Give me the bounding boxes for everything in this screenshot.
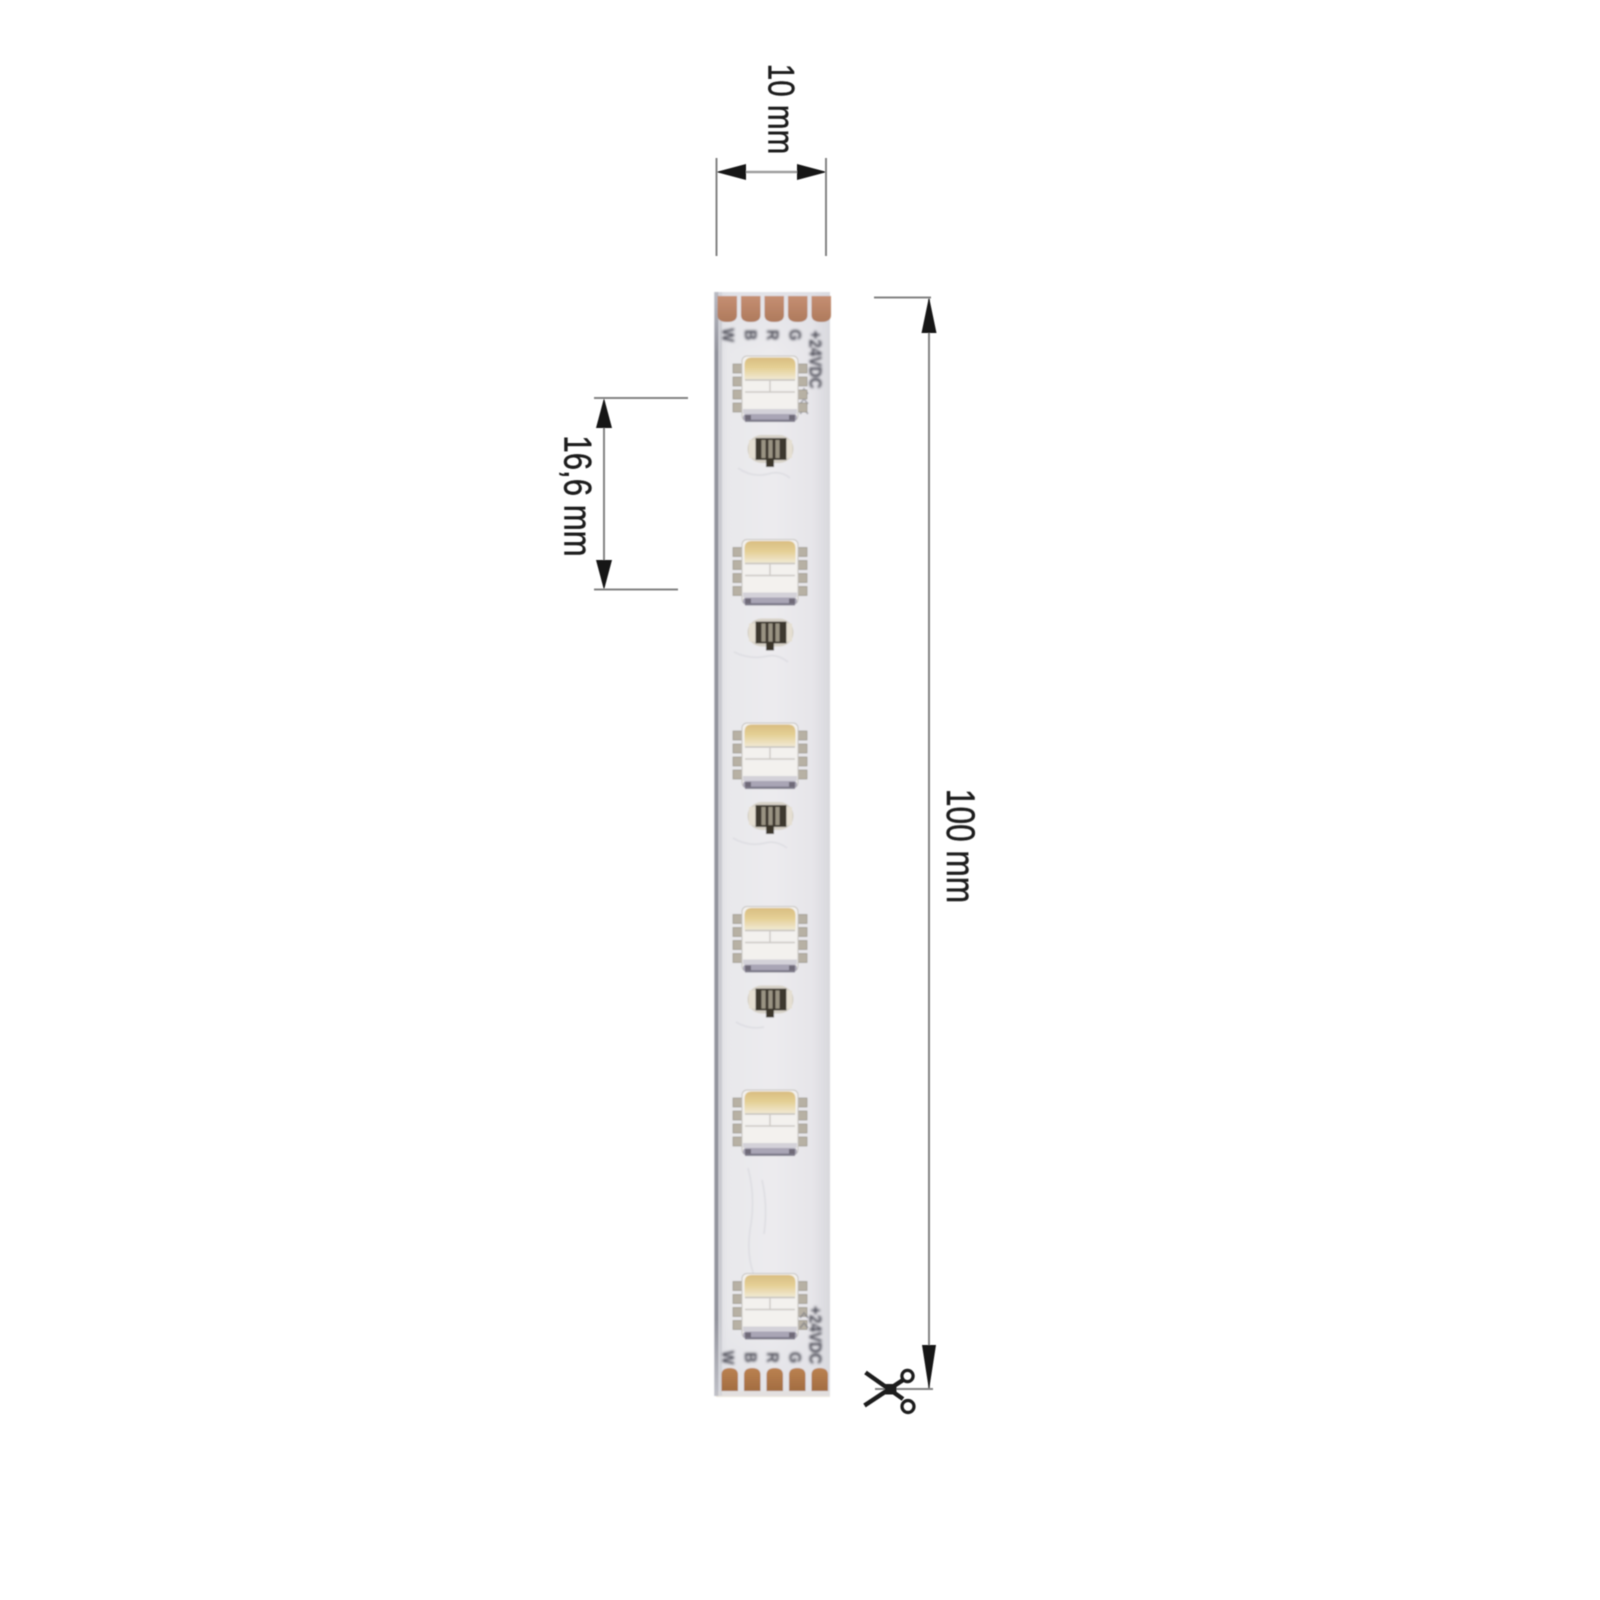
svg-text:B: B (741, 1352, 759, 1362)
svg-text:G: G (785, 1352, 803, 1363)
svg-text:G: G (785, 329, 803, 340)
svg-text:W: W (718, 328, 736, 342)
svg-text:10 mm: 10 mm (760, 64, 801, 154)
svg-text:R: R (763, 330, 781, 341)
svg-text:+24VDC: +24VDC (805, 330, 825, 388)
svg-text:+24VDC: +24VDC (805, 1306, 825, 1364)
svg-text:R: R (763, 1352, 781, 1363)
svg-text:100 mm: 100 mm (938, 789, 982, 903)
svg-text:16,6 mm: 16,6 mm (555, 435, 598, 556)
svg-text:W: W (718, 1351, 736, 1365)
svg-text:B: B (741, 330, 759, 340)
